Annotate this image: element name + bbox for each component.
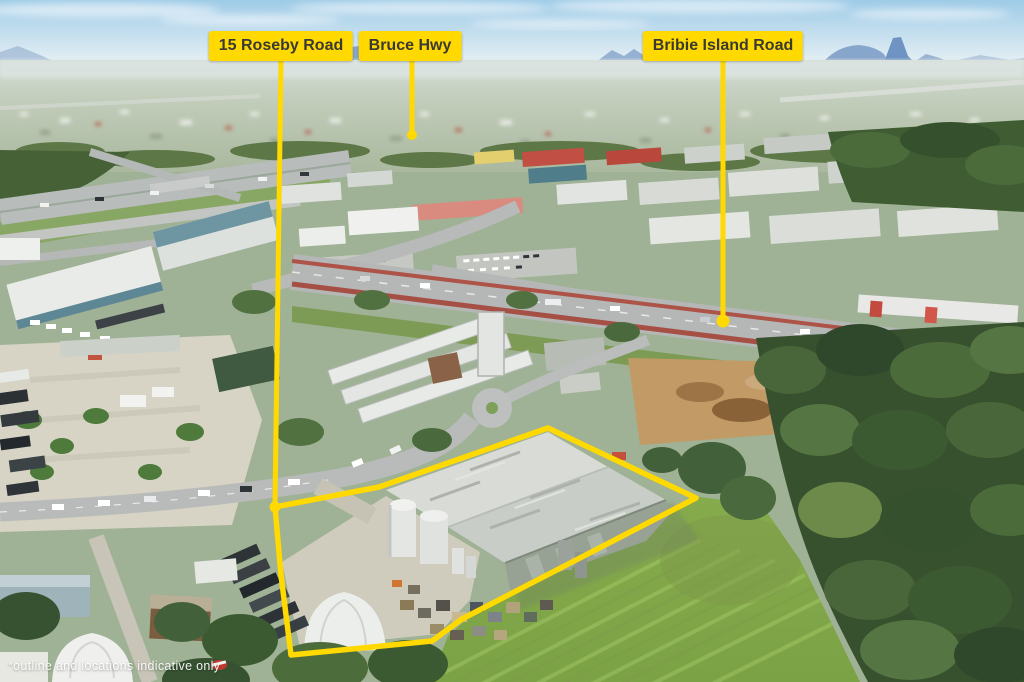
label-15-roseby-road: 15 Roseby Road: [209, 31, 353, 61]
label-bruce-hwy: Bruce Hwy: [359, 31, 462, 61]
dome-tent-2: [52, 633, 133, 682]
aerial-photo-scene: [0, 0, 1024, 682]
aerial-photo: 15 Roseby Road Bruce Hwy Bribie Island R…: [0, 0, 1024, 682]
disclaimer-text: *outline and locations indicative only: [8, 659, 220, 673]
label-bribie-island-road: Bribie Island Road: [643, 31, 803, 61]
